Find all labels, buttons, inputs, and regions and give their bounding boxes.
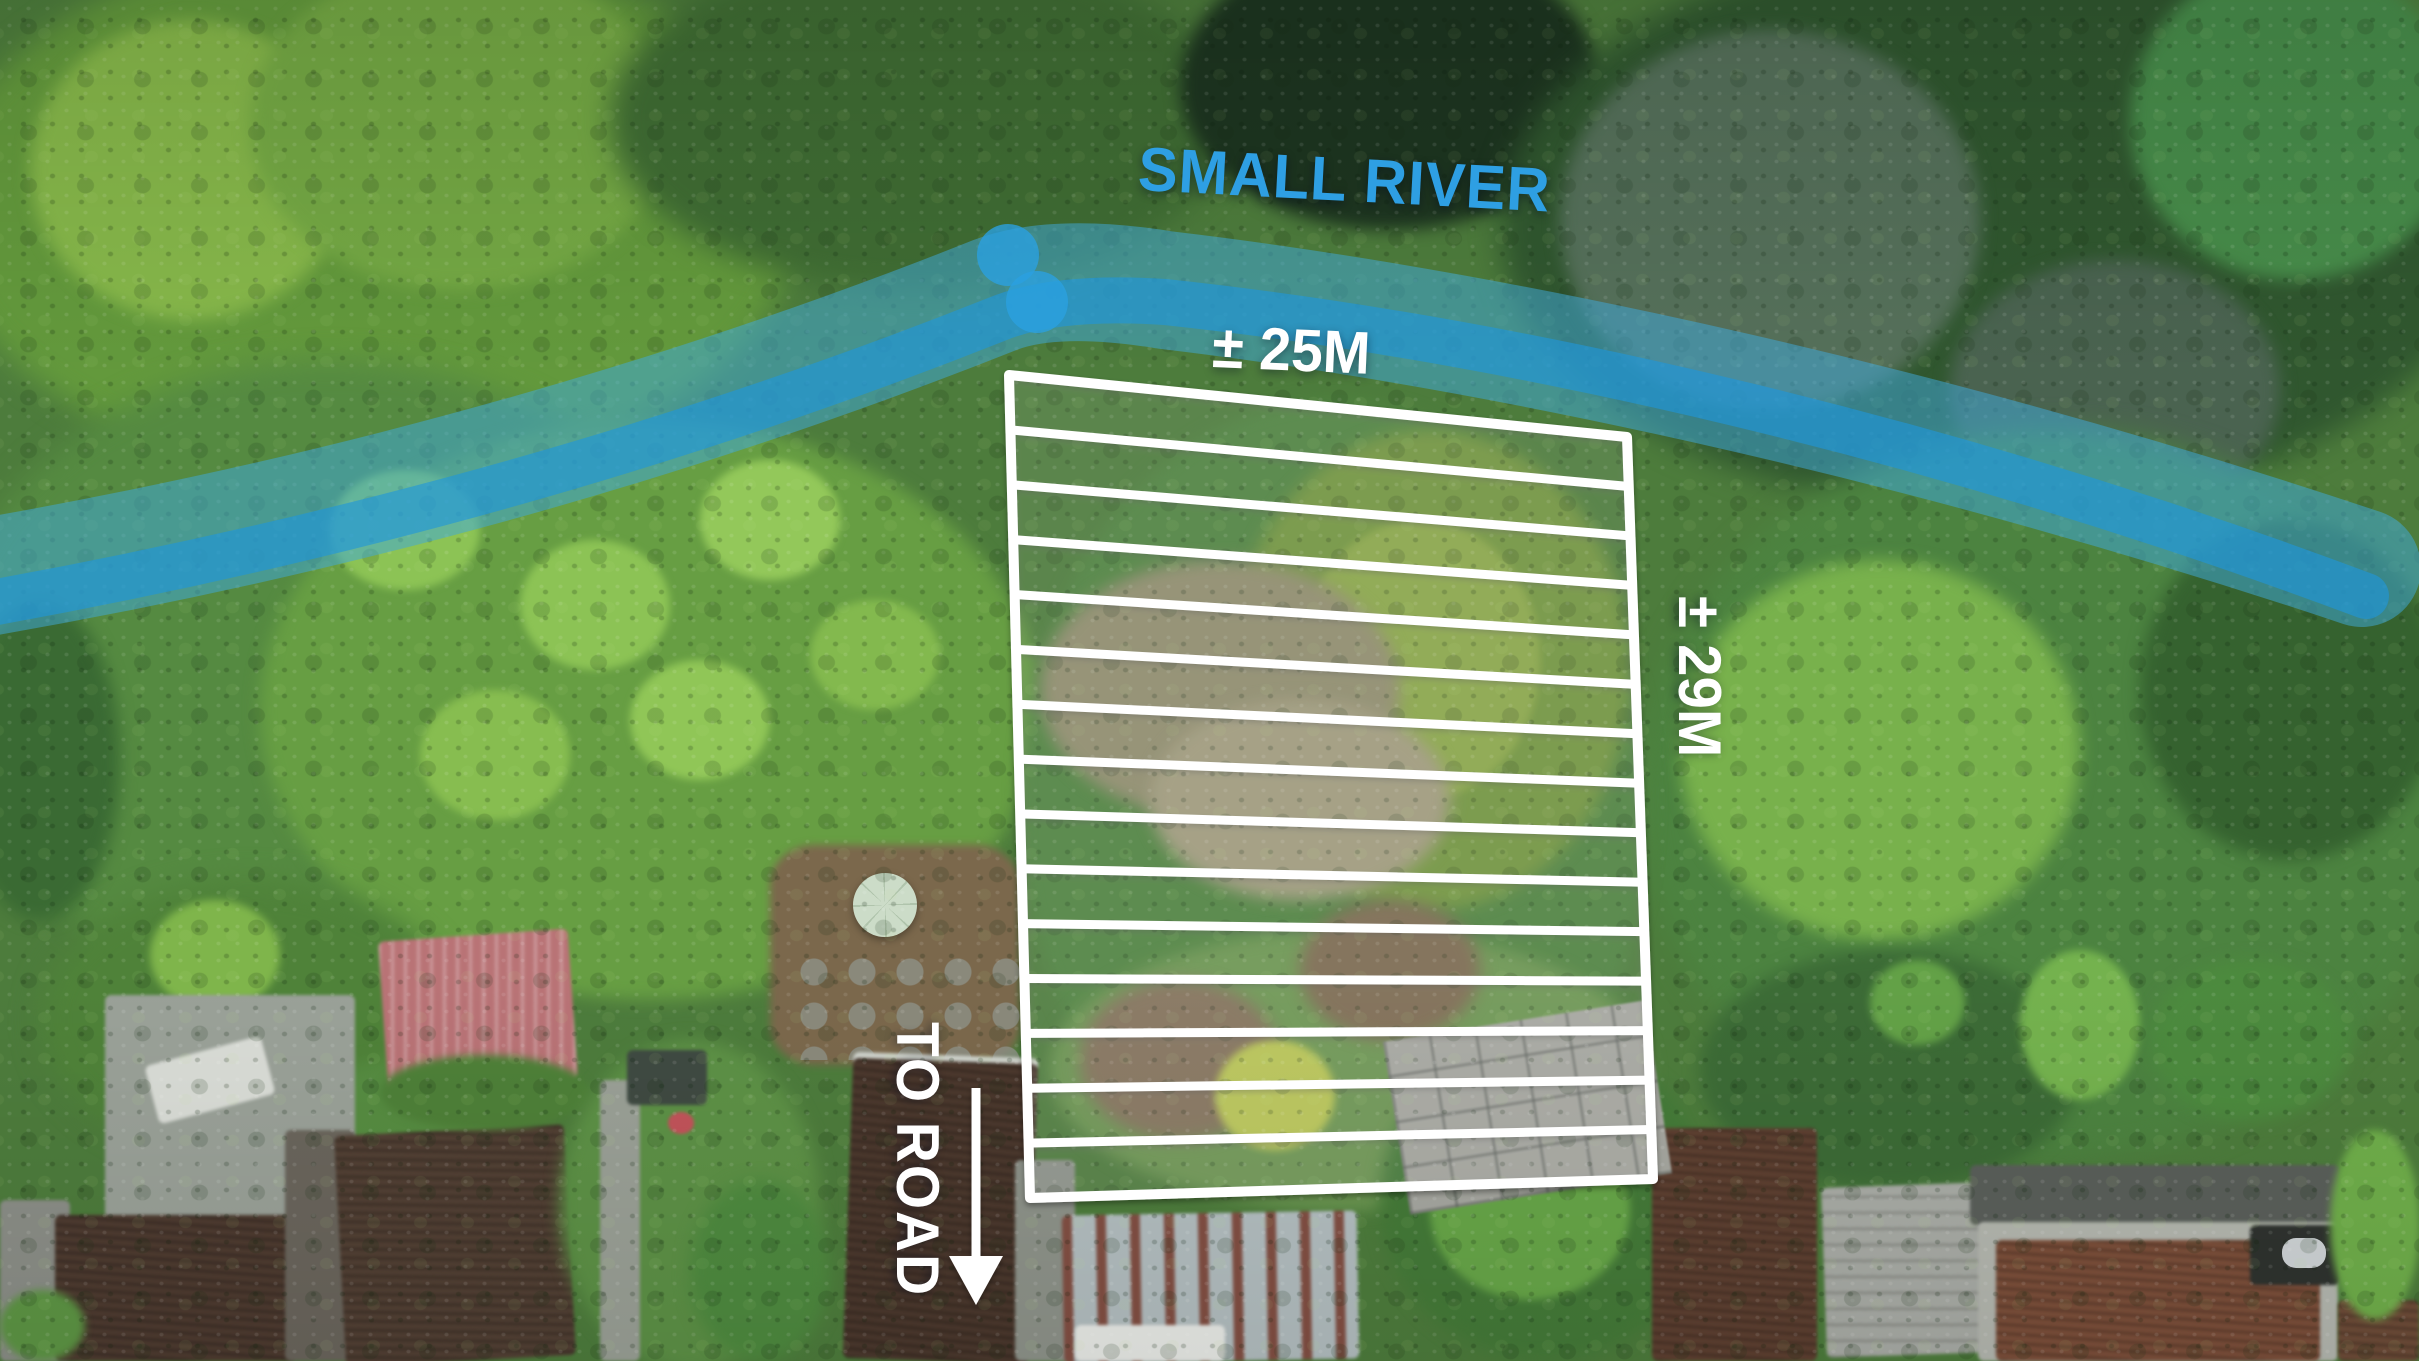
tree-canopy (1680, 560, 2080, 940)
banana-plant (520, 540, 670, 670)
tree-canopy (2150, 960, 2350, 1120)
tree-canopy (150, 900, 280, 1010)
water-heater (2282, 1238, 2326, 1268)
aerial-photo-canvas: SMALL RIVER ± 25M ± 29M TO ROAD (0, 0, 2419, 1361)
house-roof (1652, 1128, 1817, 1361)
tree-canopy (690, 1180, 830, 1361)
palm-fronds (1560, 30, 1980, 410)
tree-canopy (0, 1290, 85, 1361)
to-road-label: TO ROAD (883, 1022, 952, 1297)
yellow-bush (1215, 1040, 1335, 1150)
plank-roof (1821, 1182, 1992, 1358)
banana-plant (700, 460, 840, 580)
garden-shed (627, 1050, 707, 1105)
flower-bed (668, 1112, 694, 1134)
dried-palm-fronds (1150, 700, 1450, 900)
banana-plant (330, 470, 480, 590)
plot-depth-dimension-label: ± 29M (1665, 596, 1734, 757)
white-slab-roof (1075, 1325, 1225, 1361)
banana-plant (810, 600, 940, 710)
tree-canopy (1870, 960, 1965, 1045)
banana-plant (420, 690, 570, 820)
house-roof (334, 1124, 576, 1361)
patio-umbrella (853, 873, 917, 937)
house-roof (55, 1215, 295, 1361)
plot-width-dimension-label: ± 25M (1211, 312, 1372, 388)
banana-plant (2330, 1130, 2419, 1320)
banana-plant (2020, 950, 2140, 1100)
flat-roof-strip (1970, 1165, 2340, 1225)
banana-plant (630, 660, 770, 780)
garden-path (600, 1080, 640, 1361)
hedge (380, 1055, 590, 1130)
dirt-patch (1300, 900, 1480, 1040)
